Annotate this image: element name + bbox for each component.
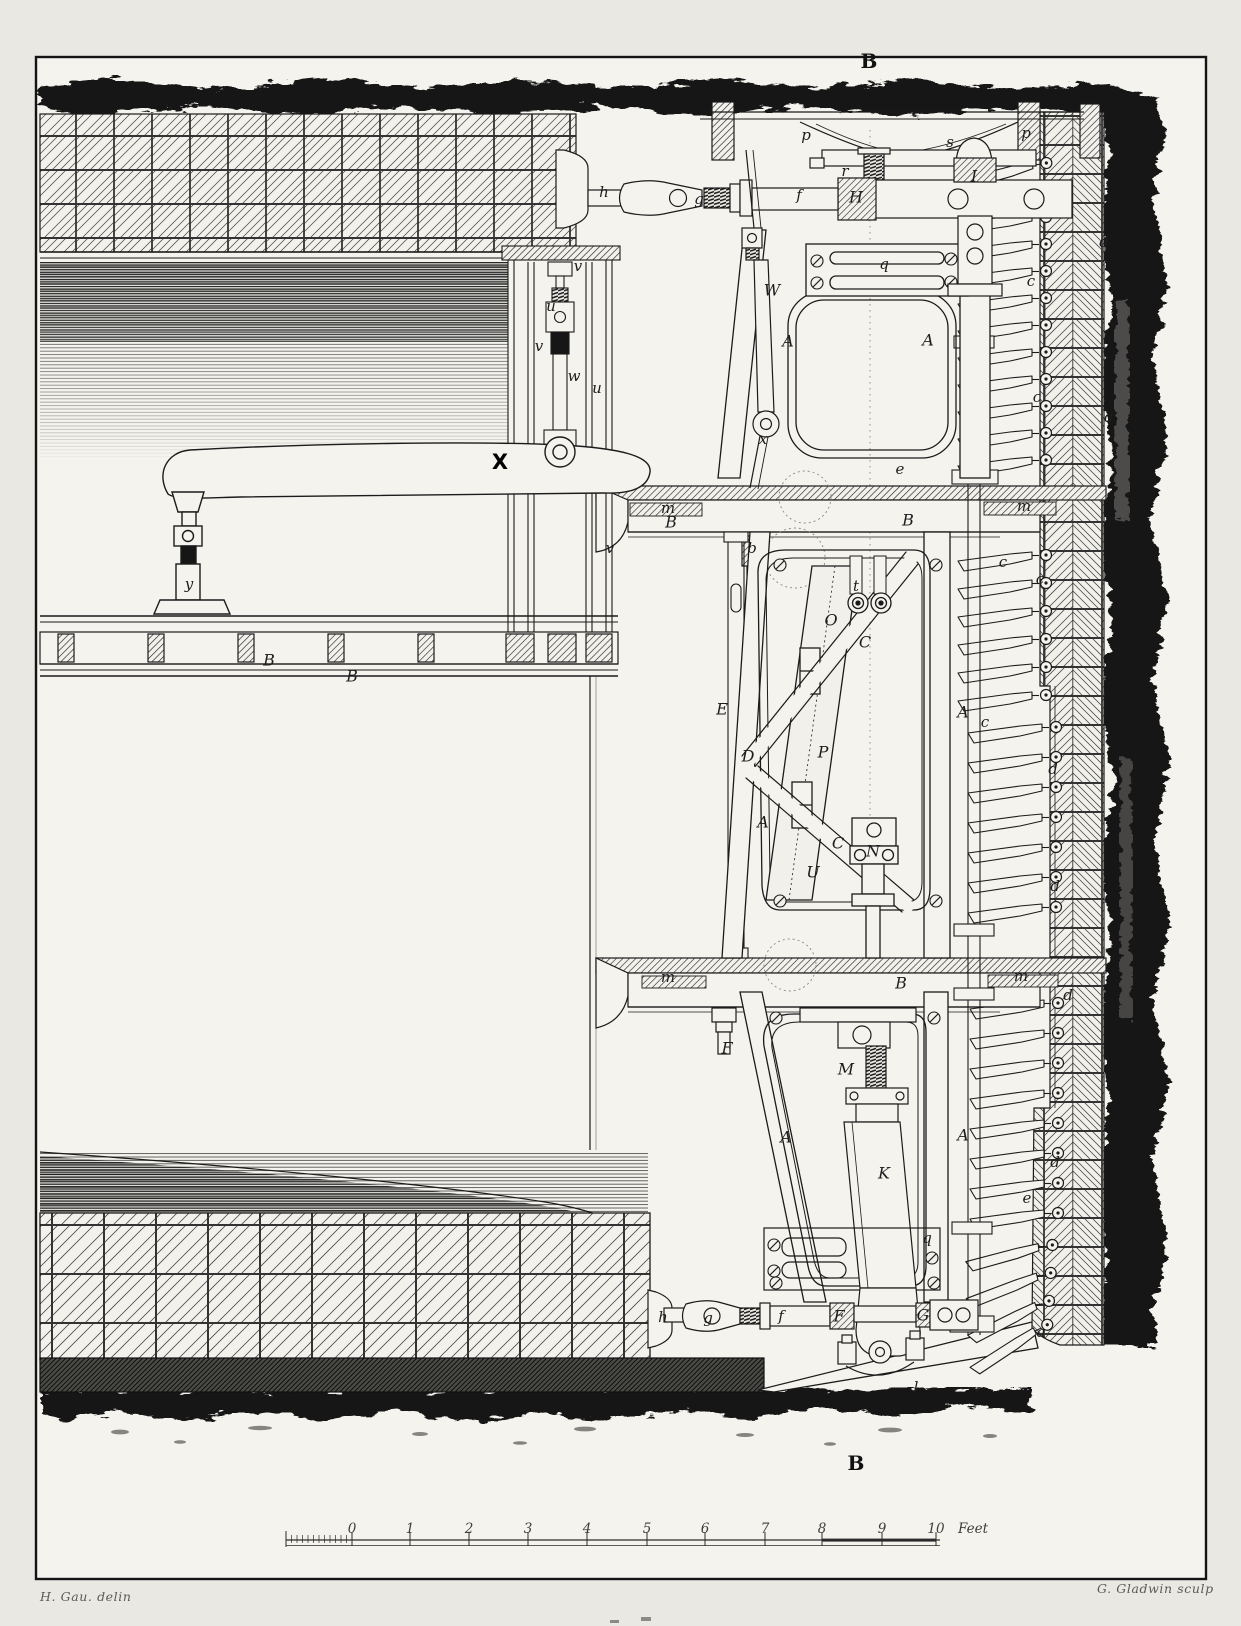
floor-strip [40,1358,764,1392]
masonry-upper [40,114,620,258]
engraving-artwork [0,0,1241,1626]
engraving-plate: hgfHrpspIqWAAxvuvwuXyvBBmBbBmetOCEADPACN… [0,0,1241,1626]
delineator-credit: H. Gau. delin [40,1589,132,1604]
section-mark-bottom: B [848,1451,865,1475]
engraver-credit: G. Gladwin sculp [1097,1581,1214,1596]
masonry-lower [40,1213,650,1360]
wall-shading [40,262,508,458]
section-mark-top: B [861,49,878,73]
